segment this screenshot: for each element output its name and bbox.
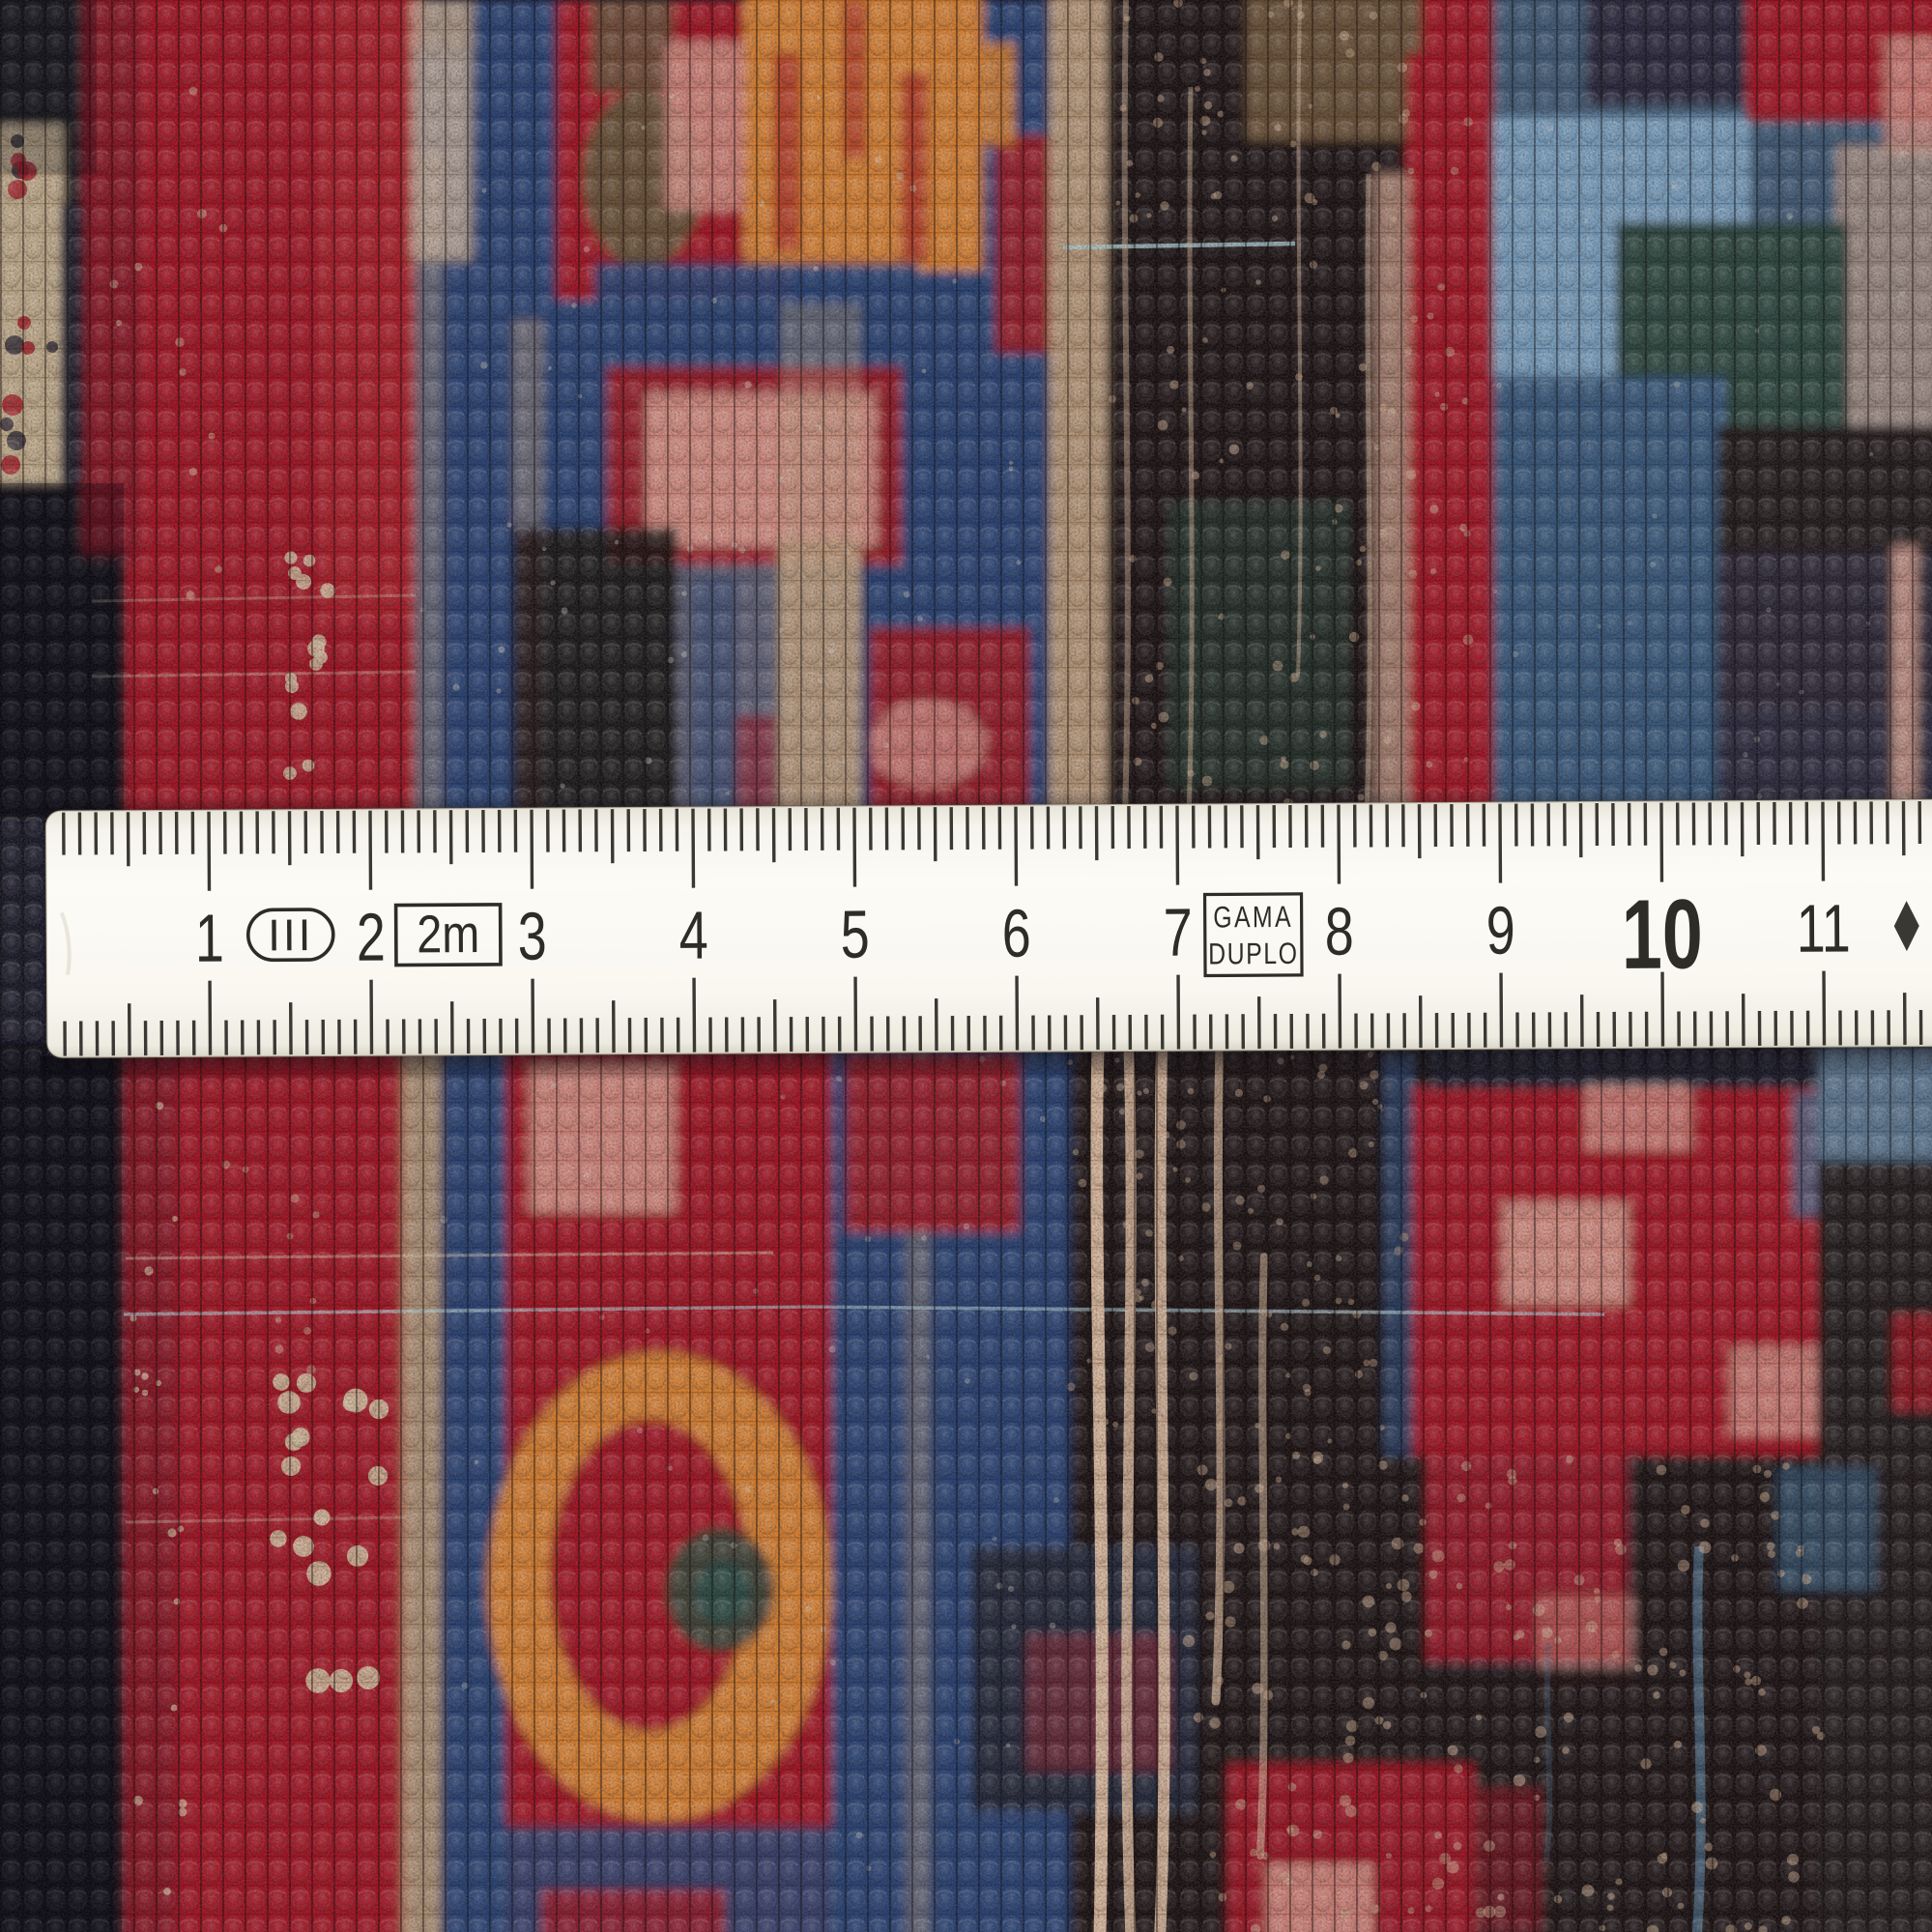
- svg-text:III: III: [268, 909, 314, 960]
- svg-text:6: 6: [1002, 896, 1031, 972]
- svg-text:DUPLO: DUPLO: [1208, 937, 1299, 970]
- svg-text:7: 7: [1164, 895, 1193, 971]
- svg-text:8: 8: [1325, 894, 1354, 970]
- svg-text:GAMA: GAMA: [1213, 900, 1293, 934]
- svg-text:1: 1: [195, 901, 224, 977]
- svg-text:3: 3: [518, 899, 547, 975]
- svg-text:4: 4: [679, 898, 708, 974]
- svg-text:5: 5: [841, 897, 870, 973]
- svg-text:2m: 2m: [417, 904, 479, 964]
- svg-text:2: 2: [357, 900, 386, 976]
- svg-text:9: 9: [1486, 893, 1515, 969]
- svg-text:11: 11: [1797, 891, 1851, 967]
- svg-text:10: 10: [1621, 879, 1703, 990]
